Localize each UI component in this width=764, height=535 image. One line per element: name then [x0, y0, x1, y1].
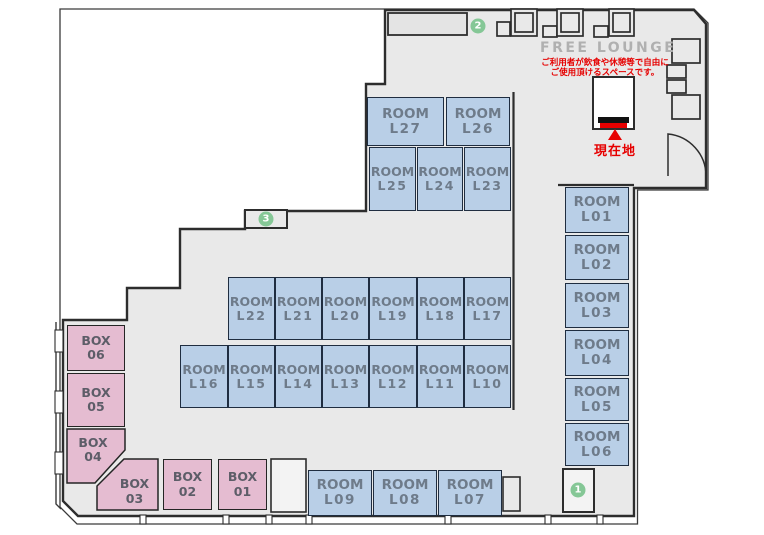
box-label: BOX	[173, 469, 202, 484]
room-L05[interactable]: ROOML05	[565, 378, 629, 421]
room-label: ROOM	[382, 106, 429, 122]
lounge-chair-3	[667, 80, 686, 93]
box-03[interactable]: BOX03	[95, 459, 158, 510]
room-L11[interactable]: ROOML11	[417, 345, 464, 408]
alcove	[271, 459, 306, 512]
free-lounge-note-line2: ご使用頂けるスペースです。	[524, 68, 686, 78]
room-number: L26	[462, 121, 494, 137]
room-L07[interactable]: ROOML07	[438, 470, 502, 516]
room-number: L04	[581, 352, 613, 368]
room-L01[interactable]: ROOML01	[565, 187, 629, 233]
room-label: ROOM	[317, 477, 364, 493]
room-label: ROOM	[419, 362, 462, 377]
room-L08[interactable]: ROOML08	[373, 470, 437, 516]
room-label: ROOM	[447, 477, 494, 493]
room-number: L14	[284, 376, 314, 391]
room-number: L06	[581, 444, 613, 460]
room-L23[interactable]: ROOML23	[464, 147, 511, 211]
current-location-marker	[608, 129, 622, 140]
room-label: ROOM	[230, 362, 273, 377]
free-lounge-note: ご利用者が飲食や休憩等で自由に ご使用頂けるスペースです。	[524, 58, 686, 78]
room-L09[interactable]: ROOML09	[308, 470, 372, 516]
box-label: BOX	[120, 476, 149, 491]
box-number: 03	[126, 491, 143, 506]
room-label: ROOM	[466, 164, 509, 179]
lounge-chair-4	[672, 95, 700, 119]
room-number: L17	[473, 308, 503, 323]
room-label: ROOM	[419, 294, 462, 309]
box-05[interactable]: BOX05	[67, 373, 125, 427]
marker-2-badge: 2	[471, 19, 486, 34]
box-label: BOX	[81, 385, 110, 400]
room-L27[interactable]: ROOML27	[367, 97, 444, 146]
room-label: ROOM	[466, 362, 509, 377]
room-L03[interactable]: ROOML03	[565, 283, 629, 328]
room-label: ROOM	[324, 294, 367, 309]
room-L22[interactable]: ROOML22	[228, 277, 275, 340]
room-L13[interactable]: ROOML13	[322, 345, 369, 408]
room-number: L18	[426, 308, 456, 323]
counter	[388, 13, 467, 35]
room-number: L07	[454, 492, 486, 508]
room-number: L27	[390, 121, 422, 137]
room-number: L08	[389, 492, 421, 508]
room-number: L01	[581, 209, 613, 225]
room-L25[interactable]: ROOML25	[369, 147, 416, 211]
room-number: L24	[425, 178, 455, 193]
room-number: L13	[331, 376, 361, 391]
box-label: BOX	[78, 435, 107, 450]
room-L20[interactable]: ROOML20	[322, 277, 369, 340]
room-number: L21	[284, 308, 314, 323]
box-number: 01	[234, 484, 251, 499]
room-L12[interactable]: ROOML12	[369, 345, 417, 408]
room-L15[interactable]: ROOML15	[228, 345, 275, 408]
room-label: ROOM	[574, 337, 621, 353]
room-label: ROOM	[574, 429, 621, 445]
box-number: 02	[179, 484, 196, 499]
marker-1-badge: 1	[571, 483, 586, 498]
room-L17[interactable]: ROOML17	[464, 277, 511, 340]
room-number: L03	[581, 305, 613, 321]
marker-3-badge: 3	[259, 212, 274, 227]
info-kiosk	[593, 77, 634, 129]
room-label: ROOM	[418, 164, 461, 179]
room-number: L16	[189, 376, 219, 391]
room-L18[interactable]: ROOML18	[417, 277, 464, 340]
room-label: ROOM	[574, 194, 621, 210]
room-number: L22	[237, 308, 267, 323]
box-label: BOX	[81, 333, 110, 348]
floor-map: ROOML27ROOML26ROOML25ROOML24ROOML23ROOML…	[0, 0, 764, 535]
room-label: ROOM	[230, 294, 273, 309]
room-number: L05	[581, 399, 613, 415]
box-number: 06	[87, 347, 104, 362]
box-02[interactable]: BOX02	[163, 459, 212, 510]
box-06[interactable]: BOX06	[67, 325, 125, 371]
room-number: L12	[378, 376, 408, 391]
room-label: ROOM	[455, 106, 502, 122]
room-L04[interactable]: ROOML04	[565, 330, 629, 376]
room-number: L02	[581, 257, 613, 273]
room-label: ROOM	[324, 362, 367, 377]
room-label: ROOM	[466, 294, 509, 309]
room-label: ROOM	[371, 164, 414, 179]
room-L26[interactable]: ROOML26	[446, 97, 510, 146]
room-number: L20	[331, 308, 361, 323]
room-L10[interactable]: ROOML10	[464, 345, 511, 408]
room-label: ROOM	[371, 362, 414, 377]
box-number: 05	[87, 399, 104, 414]
room-number: L15	[237, 376, 267, 391]
room-L19[interactable]: ROOML19	[369, 277, 417, 340]
room-label: ROOM	[382, 477, 429, 493]
room-L06[interactable]: ROOML06	[565, 423, 629, 466]
room-number: L10	[473, 376, 503, 391]
room-number: L23	[473, 178, 503, 193]
room-label: ROOM	[574, 242, 621, 258]
room-L16[interactable]: ROOML16	[180, 345, 228, 408]
room-L14[interactable]: ROOML14	[275, 345, 322, 408]
room-label: ROOM	[574, 384, 621, 400]
room-number: L19	[378, 308, 408, 323]
room-label: ROOM	[182, 362, 225, 377]
room-L21[interactable]: ROOML21	[275, 277, 322, 340]
current-location-label: 現在地	[581, 140, 649, 159]
room-number: L09	[324, 492, 356, 508]
recess	[503, 477, 520, 511]
box-01[interactable]: BOX01	[218, 459, 267, 510]
left-wall-ticks	[55, 330, 63, 474]
box-label: BOX	[228, 469, 257, 484]
room-label: ROOM	[574, 290, 621, 306]
room-L24[interactable]: ROOML24	[417, 147, 463, 211]
free-lounge-note-line1: ご利用者が飲食や休憩等で自由に	[524, 58, 686, 68]
room-number: L11	[426, 376, 456, 391]
room-L02[interactable]: ROOML02	[565, 235, 629, 280]
room-label: ROOM	[277, 362, 320, 377]
room-label: ROOM	[277, 294, 320, 309]
free-lounge-title: FREE LOUNGE	[540, 40, 672, 56]
room-label: ROOM	[371, 294, 414, 309]
room-number: L25	[378, 178, 408, 193]
